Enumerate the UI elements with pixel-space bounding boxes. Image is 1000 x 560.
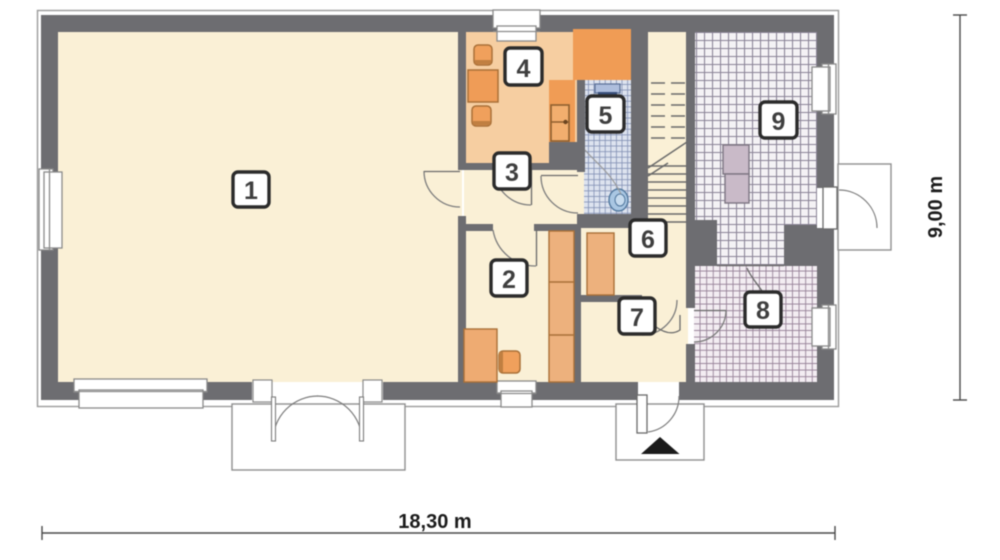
svg-text:1: 1 (244, 177, 258, 205)
svg-text:7: 7 (630, 304, 644, 332)
svg-text:8: 8 (756, 297, 770, 325)
svg-text:4: 4 (517, 55, 531, 83)
svg-text:9,00 m: 9,00 m (925, 176, 947, 238)
svg-text:18,30 m: 18,30 m (398, 511, 471, 533)
svg-text:3: 3 (505, 159, 519, 187)
svg-text:9: 9 (772, 108, 786, 136)
svg-text:5: 5 (599, 102, 613, 130)
svg-text:6: 6 (641, 226, 655, 254)
svg-text:2: 2 (502, 266, 516, 294)
